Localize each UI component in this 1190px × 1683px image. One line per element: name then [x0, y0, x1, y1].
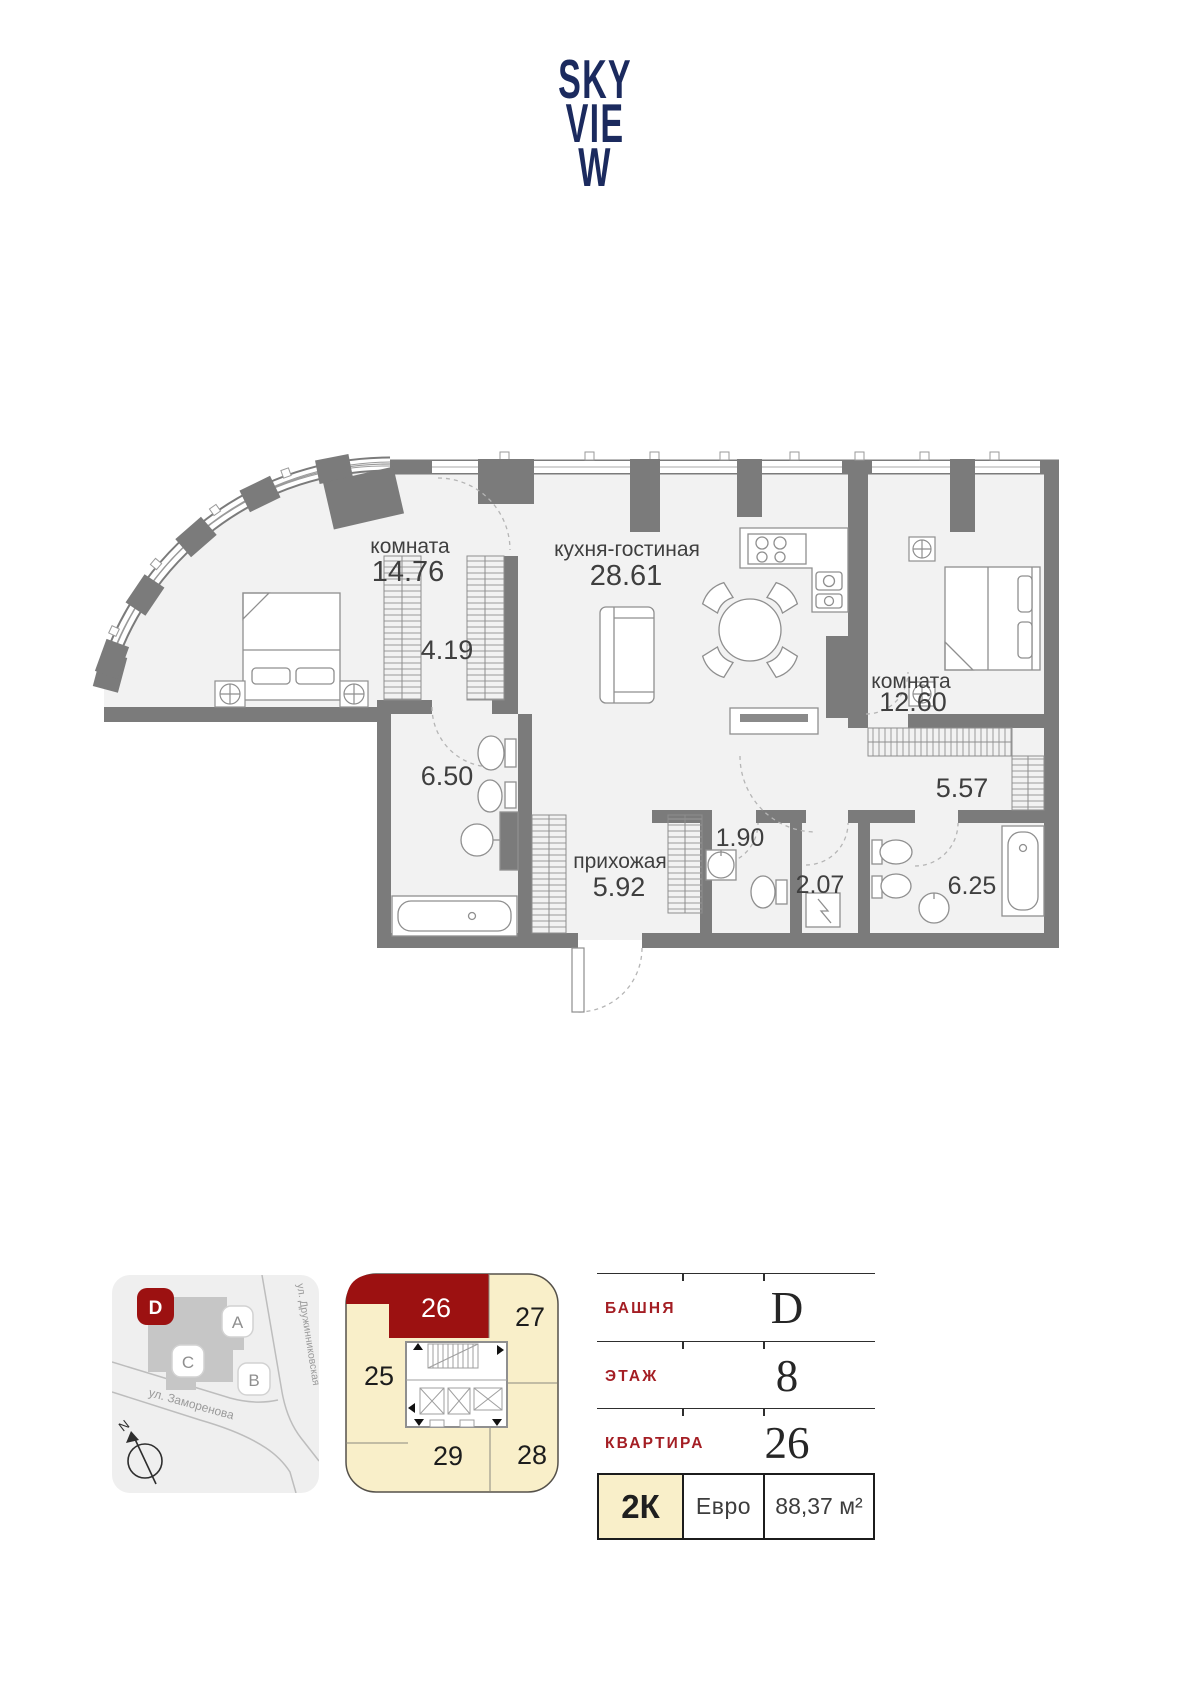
closet-area-label: 5.57	[936, 773, 989, 803]
tower-row-label: БАШНЯ	[605, 1300, 676, 1318]
wc1-area-label: 1.90	[716, 824, 765, 852]
site-map-card: D A C B ул. Дружинниковская ул. Заморено…	[112, 1275, 319, 1493]
total-area-cell: 88,37 м²	[765, 1475, 873, 1538]
tower-row-value: D	[717, 1282, 857, 1334]
bath2-area-label: 6.25	[948, 872, 997, 900]
floor-plan: комната 14.76 кухня-гостиная 28.61 4.19 …	[90, 430, 1080, 1030]
layout-type-cell: Евро	[684, 1475, 765, 1538]
unit-29-label: 29	[433, 1441, 463, 1471]
hall-area-label: 5.92	[593, 872, 646, 902]
kitchen-name-label: кухня-гостиная	[554, 538, 700, 561]
unit-25-label: 25	[364, 1361, 394, 1391]
tower-d-label: D	[149, 1298, 163, 1319]
room2-area-label: 12.60	[879, 687, 947, 717]
tower-badge-d: D	[137, 1288, 174, 1325]
unit-27-label: 27	[515, 1302, 545, 1332]
building-core	[406, 1342, 507, 1427]
tv-stand-icon	[730, 708, 818, 734]
skyview-logo: SKY VIE W	[475, 28, 715, 198]
room1-area-label: 14.76	[372, 556, 445, 588]
bed-icon	[243, 593, 340, 700]
bath1-area-label: 6.50	[421, 761, 474, 791]
tower-b-label: B	[248, 1371, 259, 1390]
apartment-row-value: 26	[717, 1417, 857, 1469]
tower-c-label: C	[182, 1353, 194, 1372]
kitchen-area-label: 28.61	[590, 560, 663, 592]
tower-badge-a: A	[222, 1306, 253, 1337]
tower-badge-c: C	[172, 1345, 204, 1377]
logo-line-3: W	[578, 137, 611, 198]
key-plan-card: 26 27 25 29 28	[344, 1272, 560, 1494]
floor-row-value: 8	[717, 1350, 857, 1402]
unit-28-label: 28	[517, 1440, 547, 1470]
floor-row-label: ЭТАЖ	[605, 1368, 659, 1386]
info-row-tower: БАШНЯ D	[597, 1273, 875, 1341]
hall-name-label: прихожая	[573, 850, 667, 873]
rooms-count-cell: 2К	[599, 1475, 684, 1538]
info-row-apartment: КВАРТИРА 26	[597, 1408, 875, 1476]
wc2-area-label: 2.07	[796, 871, 845, 899]
bed2-icon	[945, 567, 1040, 670]
lobby-area-label: 4.19	[421, 635, 474, 665]
unit-26-label: 26	[421, 1293, 451, 1323]
entrance-door-leaf	[572, 948, 584, 1012]
info-row-floor: ЭТАЖ 8	[597, 1341, 875, 1409]
apartment-info-table: БАШНЯ D ЭТАЖ 8 КВАРТИРА 26 2К Евро 88,37…	[597, 1273, 875, 1540]
tower-badge-b: B	[238, 1363, 270, 1395]
summary-box: 2К Евро 88,37 м²	[597, 1473, 875, 1540]
plan-sheet: SKY VIE W	[0, 0, 1190, 1683]
room1-name-label: комната	[370, 535, 450, 558]
sofa-icon	[600, 607, 654, 703]
apartment-row-label: КВАРТИРА	[605, 1435, 705, 1453]
tower-a-label: A	[232, 1313, 244, 1332]
